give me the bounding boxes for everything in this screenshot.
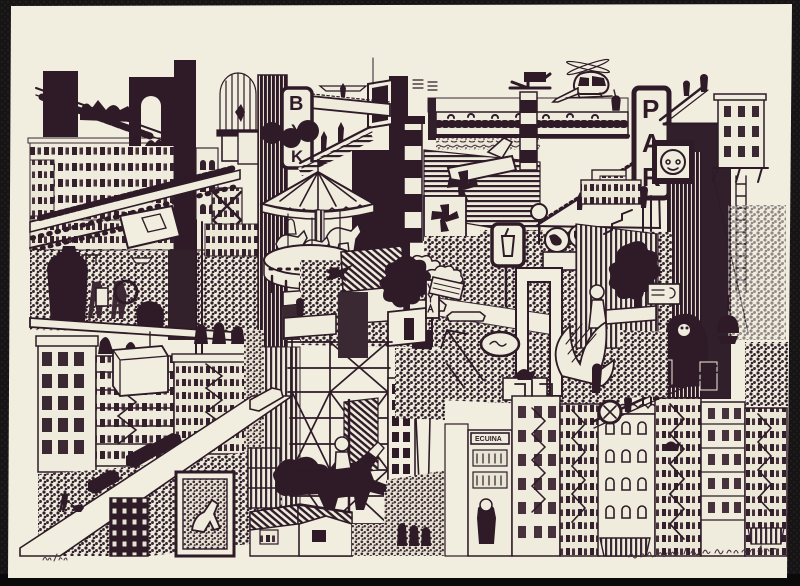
svg-text:P: P bbox=[642, 94, 659, 124]
svg-text:B: B bbox=[289, 93, 303, 115]
svg-text:ECUINA: ECUINA bbox=[475, 436, 502, 443]
